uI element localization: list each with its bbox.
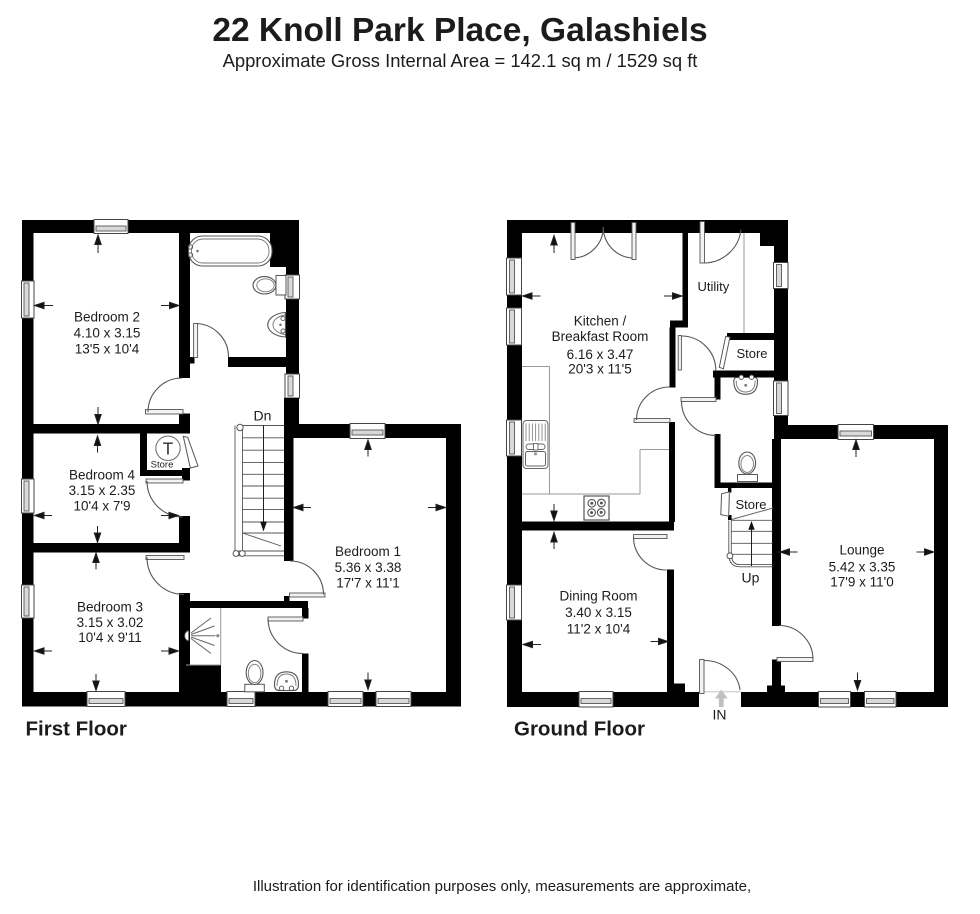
svg-text:Ground Floor: Ground Floor: [514, 718, 645, 741]
svg-text:10'4 x 7'9: 10'4 x 7'9: [74, 499, 131, 514]
svg-text:First Floor: First Floor: [26, 718, 127, 741]
svg-text:5.42 x 3.35: 5.42 x 3.35: [829, 560, 896, 575]
svg-text:Breakfast Room: Breakfast Room: [552, 329, 649, 344]
svg-text:Lounge: Lounge: [839, 543, 884, 558]
svg-text:10'4 x 9'11: 10'4 x 9'11: [78, 630, 141, 645]
svg-text:Store: Store: [736, 346, 767, 361]
svg-text:Bedroom 2: Bedroom 2: [74, 310, 140, 325]
svg-text:Kitchen /: Kitchen /: [574, 314, 627, 329]
svg-text:Dn: Dn: [254, 408, 272, 424]
svg-text:T: T: [163, 439, 174, 459]
svg-text:IN: IN: [713, 707, 727, 723]
svg-text:Up: Up: [742, 570, 760, 586]
svg-text:Dining Room: Dining Room: [559, 589, 637, 604]
svg-text:5.36 x 3.38: 5.36 x 3.38: [335, 560, 402, 575]
svg-text:Bedroom 4: Bedroom 4: [69, 468, 136, 483]
svg-text:11'2 x 10'4: 11'2 x 10'4: [567, 622, 631, 637]
svg-text:17'7 x 11'1: 17'7 x 11'1: [336, 576, 399, 591]
svg-text:3.15 x 2.35: 3.15 x 2.35: [69, 483, 136, 498]
svg-text:20'3 x 11'5: 20'3 x 11'5: [568, 362, 631, 377]
svg-text:Store: Store: [151, 460, 174, 471]
svg-text:3.40 x 3.15: 3.40 x 3.15: [565, 605, 632, 620]
svg-text:Approximate Gross Internal Are: Approximate Gross Internal Area = 142.1 …: [223, 50, 698, 71]
svg-text:22 Knoll Park Place, Galashiel: 22 Knoll Park Place, Galashiels: [212, 12, 707, 49]
svg-text:Bedroom 1: Bedroom 1: [335, 544, 401, 559]
svg-text:17'9 x 11'0: 17'9 x 11'0: [830, 575, 893, 590]
svg-text:Utility: Utility: [698, 279, 730, 294]
svg-text:Store: Store: [735, 497, 766, 512]
svg-text:4.10 x 3.15: 4.10 x 3.15: [74, 326, 141, 341]
svg-text:13'5 x 10'4: 13'5 x 10'4: [75, 342, 140, 357]
svg-text:Illustration for identificatio: Illustration for identification purposes…: [253, 878, 751, 895]
svg-text:3.15 x 3.02: 3.15 x 3.02: [77, 615, 144, 630]
svg-text:6.16 x 3.47: 6.16 x 3.47: [567, 347, 634, 362]
svg-text:Bedroom 3: Bedroom 3: [77, 600, 143, 615]
